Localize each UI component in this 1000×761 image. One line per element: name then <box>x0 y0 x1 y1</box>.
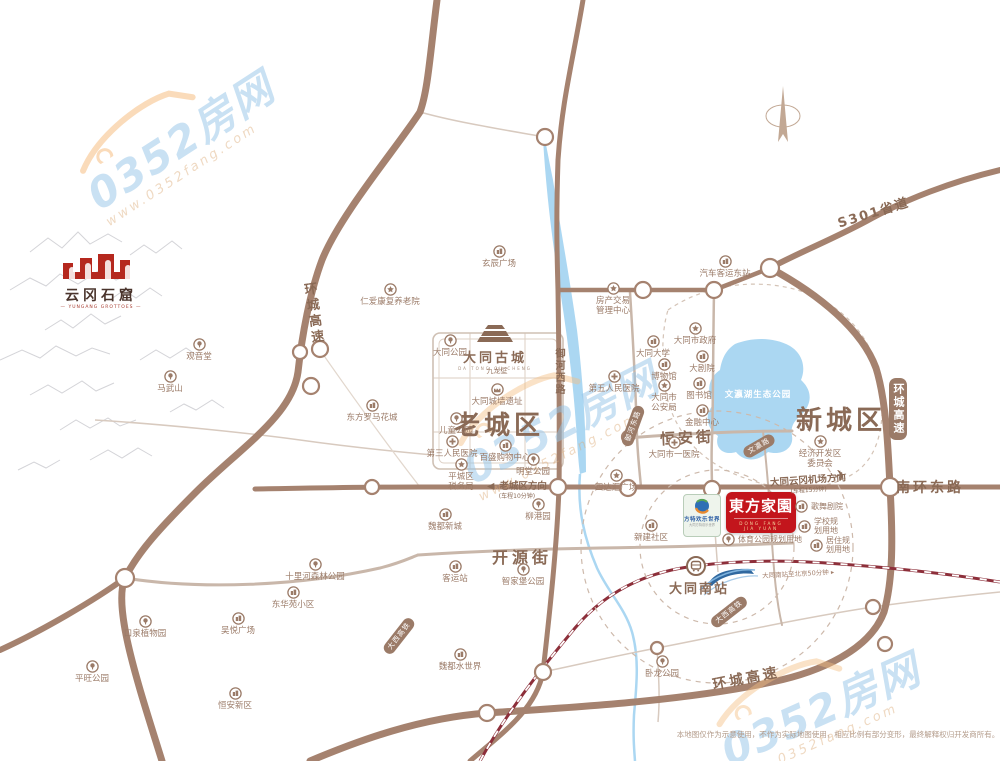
poi-wolong-park: 卧龙公园 <box>607 655 717 679</box>
tree-icon <box>527 453 540 466</box>
tree-icon <box>532 498 545 511</box>
building-icon <box>449 560 462 573</box>
poi-east-bus-station: 汽车客运东站 <box>670 255 780 279</box>
poi-label: 观音堂 <box>144 352 254 362</box>
poi-weidu-xincheng: 魏都新城 <box>390 508 500 532</box>
building-icon <box>439 508 452 521</box>
poi-sports-park-land: 体育公园规划用地 <box>722 533 802 546</box>
station-name: 大同南站 <box>664 578 734 597</box>
district-new-city: 新城区 <box>796 400 886 437</box>
poi-label: 金融中心 <box>647 418 757 428</box>
poi-label: 恒安新区 <box>180 701 290 711</box>
wall-icon <box>491 383 504 396</box>
poi-label: 魏都新城 <box>390 522 500 532</box>
dongfang-subtitle: DONG FANG JIA YUAN <box>734 518 788 531</box>
poi-theatre: 歌舞剧院 <box>795 500 843 513</box>
poi-real-estate-center: 房产交易 管理中心 <box>558 282 668 316</box>
road-label-ring-right: 环城高速 <box>889 378 907 440</box>
poi-label: 十里河森林公园 <box>260 572 370 582</box>
poi-xinjian-community: 新建社区 <box>596 519 706 543</box>
building-icon <box>798 520 811 533</box>
poi-edz-committee: 经济开发区 委员会 <box>765 435 875 469</box>
building-icon <box>795 500 808 513</box>
star-icon <box>610 469 623 482</box>
tree-icon <box>164 370 177 383</box>
poi-label: 新建社区 <box>596 533 706 543</box>
tree-icon <box>193 338 206 351</box>
building-icon <box>645 519 658 532</box>
poi-label: 魏都水世界 <box>405 662 515 672</box>
building-icon <box>647 335 660 348</box>
building-icon <box>499 439 512 452</box>
yungang-title: 云冈石窟 <box>45 285 157 305</box>
poi-mawushan: 马武山 <box>115 370 225 394</box>
building-icon <box>719 255 732 268</box>
poi-label: 房产交易 管理中心 <box>558 296 668 316</box>
poi-residential-land: 居住规 划用地 <box>810 536 850 554</box>
poi-label: 仁爱康复养老院 <box>335 297 445 307</box>
fangte-globe-icon <box>694 498 710 514</box>
building-icon <box>366 399 379 412</box>
tree-icon <box>722 533 735 546</box>
tree-icon <box>517 563 530 576</box>
yungang-subtitle: — YUNGANG GROTTOES — <box>45 305 157 310</box>
poi-label: 智家堡公园 <box>468 577 578 587</box>
poi-xuanchen: 玄辰广场 <box>444 245 554 269</box>
poi-grand-theater: 大剧院 <box>647 350 757 374</box>
poi-label: 四达汇广场 <box>561 483 671 493</box>
poi-school-land: 学校规 划用地 <box>798 517 838 535</box>
poi-guanyintang: 观音堂 <box>144 338 254 362</box>
poi-donghuayuan: 东华苑小区 <box>238 586 348 610</box>
poi-jiulongbi: 九龙壁 <box>442 366 552 375</box>
poi-first-hospital: 大同市一医院 <box>619 436 729 460</box>
poi-label: 卧龙公园 <box>607 669 717 679</box>
poi-zhijiabao-park: 智家堡公园 <box>468 563 578 587</box>
poi-label: 平旺公园 <box>37 674 147 684</box>
poi-wuyue-plaza: 吴悦广场 <box>183 612 293 636</box>
star-icon <box>689 322 702 335</box>
poi-weidu-water-world: 魏都水世界 <box>405 648 515 672</box>
poi-label: 歌舞剧院 <box>811 502 843 511</box>
poi-hengan-xinqu: 恒安新区 <box>180 687 290 711</box>
poi-renai: 仁爱康复养老院 <box>335 283 445 307</box>
poi-label: 大剧院 <box>647 364 757 374</box>
tree-icon <box>656 655 669 668</box>
building-icon <box>229 687 242 700</box>
poi-label: 居住规 划用地 <box>826 536 850 554</box>
star-icon <box>384 283 397 296</box>
building-icon <box>454 648 467 661</box>
poi-label: 吴悦广场 <box>183 626 293 636</box>
building-icon <box>696 350 709 363</box>
poi-roma: 东方罗马花城 <box>317 399 427 423</box>
yungang-grottoes-logo: 云冈石窟 — YUNGANG GROTTOES — <box>45 251 157 310</box>
poi-label: 大同市一医院 <box>619 450 729 460</box>
tree-icon <box>309 558 322 571</box>
poi-financial-center: 金融中心 <box>647 404 757 428</box>
map-disclaimer: 本地图仅作为示意使用，不作为实际地图使用，相应比例有部分变形，最终解释权归开发商… <box>668 729 1000 740</box>
poi-label: 汽车客运东站 <box>670 269 780 279</box>
poi-label: 马武山 <box>115 384 225 394</box>
poi-shilihe-park: 十里河森林公园 <box>260 558 370 582</box>
poi-label: 玄辰广场 <box>444 259 554 269</box>
station-icon <box>687 557 705 575</box>
poi-sidahui-plaza: 四达汇广场 <box>561 469 671 493</box>
tree-icon <box>444 334 457 347</box>
poi-label: 九龙壁 <box>442 367 552 375</box>
compass-tower-icon <box>766 86 800 142</box>
building-icon <box>493 245 506 258</box>
poi-label: 东方罗马花城 <box>317 413 427 423</box>
building-icon <box>696 404 709 417</box>
building-icon <box>810 539 823 552</box>
poi-label: 学校规 划用地 <box>814 517 838 535</box>
star-icon <box>814 435 827 448</box>
poi-label: 东华苑小区 <box>238 600 348 610</box>
star-icon <box>658 379 671 392</box>
poi-label: 大同公园 <box>395 348 505 358</box>
note-arrow-icon: ▸ <box>831 568 835 576</box>
grottoes-icon <box>59 251 143 281</box>
poi-city-wall-ruins: 大同城墙遗址 <box>442 383 552 407</box>
tree-icon <box>86 660 99 673</box>
road-label-nanhuan-east: 南环东路 <box>896 477 964 497</box>
dongfang-jiayuan-logo: 東方家園 DONG FANG JIA YUAN <box>726 492 796 533</box>
tree-icon <box>450 412 463 425</box>
cross-icon <box>668 436 681 449</box>
dongfang-title: 東方家園 <box>726 495 796 516</box>
poi-label: 大同城墙遗址 <box>442 397 552 407</box>
poi-label: 经济开发区 委员会 <box>765 449 875 469</box>
building-icon <box>232 612 245 625</box>
location-map: 0352房网 www.0352fang.com 0352房网 www.0352f… <box>0 0 1000 761</box>
star-icon <box>607 282 620 295</box>
tree-icon <box>139 615 152 628</box>
poi-label: 体育公园规划用地 <box>738 535 802 544</box>
poi-pingwang-park: 平旺公园 <box>37 660 147 684</box>
poi-datong-park: 大同公园 <box>395 334 505 358</box>
building-icon <box>287 586 300 599</box>
